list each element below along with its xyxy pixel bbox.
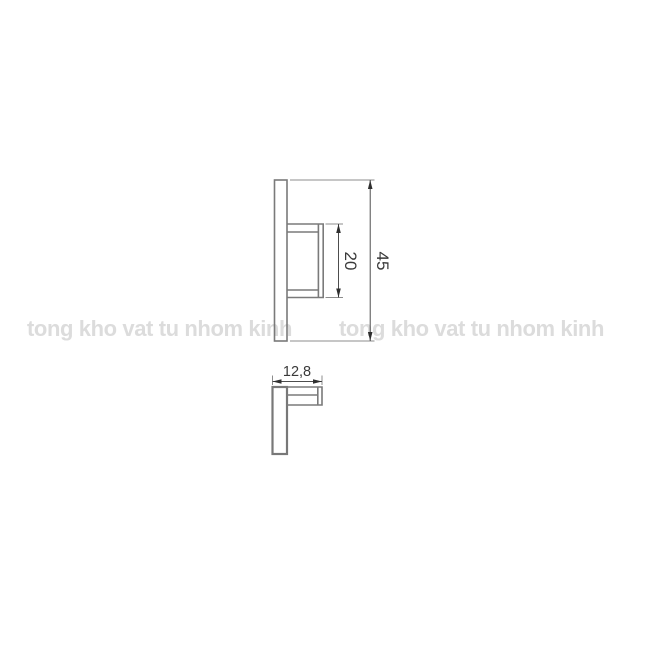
top-view-arm-outer — [287, 387, 322, 405]
arrow-up-icon — [368, 180, 373, 189]
top-view — [273, 387, 323, 454]
arrow-right-icon — [313, 379, 322, 384]
dimension-label-bracket-height: 20 — [341, 252, 360, 271]
dimension-label-depth: 12,8 — [283, 364, 311, 380]
side-view-bracket-inner — [287, 224, 318, 298]
arrow-up-icon — [336, 224, 341, 233]
dimension-bracket-height: 20 — [326, 224, 361, 298]
side-view-plate-outline — [275, 180, 288, 341]
technical-drawing: 20 45 12,8 — [0, 0, 650, 650]
arrow-down-icon — [336, 289, 341, 298]
dimension-depth: 12,8 — [273, 364, 323, 385]
dimension-total-height: 45 — [290, 180, 392, 341]
drawing-canvas: tong kho vat tu nhom kinh tong kho vat t… — [0, 0, 650, 650]
top-view-arm-inner — [287, 387, 318, 405]
arrow-down-icon — [368, 332, 373, 341]
arrow-left-icon — [273, 379, 282, 384]
side-view — [275, 180, 324, 341]
top-view-plate-outline — [273, 387, 288, 454]
dimension-label-total-height: 45 — [373, 252, 392, 271]
